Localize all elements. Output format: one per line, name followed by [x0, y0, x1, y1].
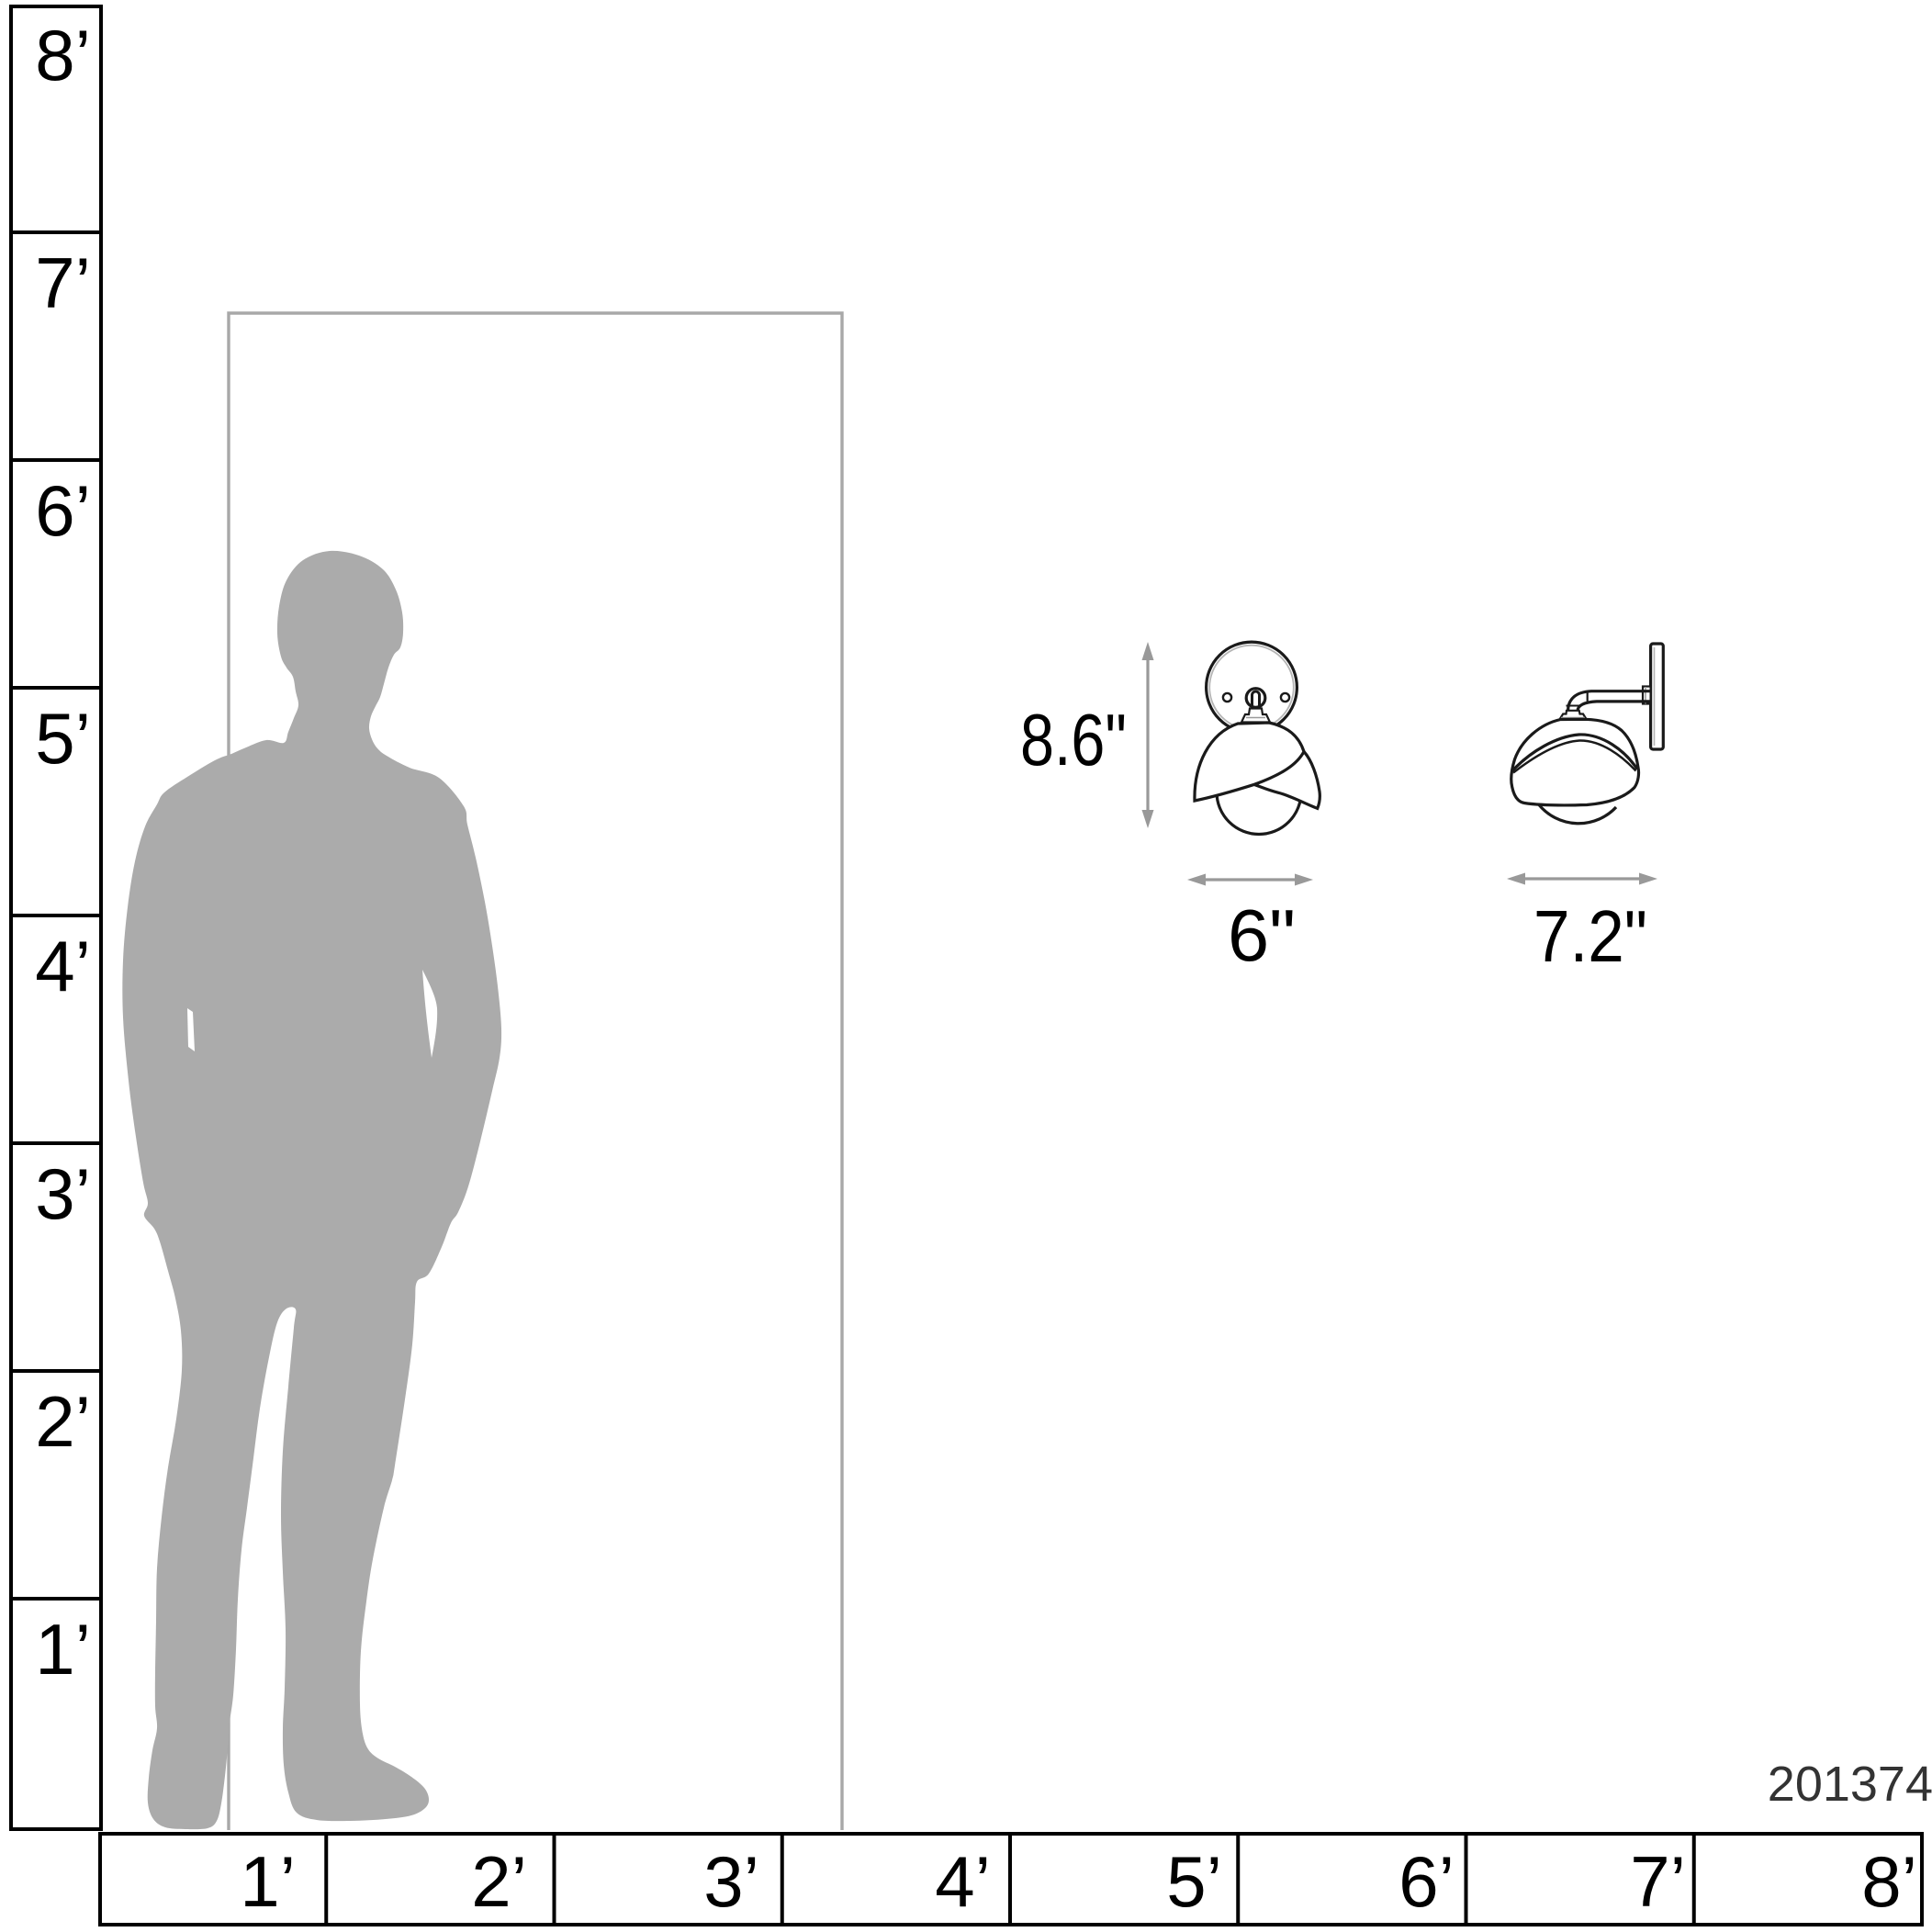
svg-text:2’: 2’: [35, 1381, 91, 1462]
svg-text:5’: 5’: [35, 698, 91, 779]
svg-text:4’: 4’: [35, 926, 91, 1006]
svg-text:3’: 3’: [35, 1153, 91, 1234]
svg-text:6’: 6’: [1398, 1841, 1455, 1922]
svg-text:7.2": 7.2": [1533, 895, 1647, 977]
svg-text:7’: 7’: [1630, 1841, 1686, 1922]
svg-text:1’: 1’: [240, 1841, 296, 1922]
svg-text:201374: 201374: [1768, 1757, 1932, 1812]
svg-text:2’: 2’: [471, 1841, 527, 1922]
svg-text:5’: 5’: [1166, 1841, 1222, 1922]
svg-text:6": 6": [1228, 894, 1296, 976]
svg-text:4’: 4’: [935, 1841, 991, 1922]
svg-text:6’: 6’: [35, 470, 91, 551]
svg-text:8’: 8’: [1861, 1841, 1917, 1922]
svg-text:7’: 7’: [35, 242, 91, 323]
svg-text:8.6": 8.6": [1020, 699, 1127, 781]
svg-text:1’: 1’: [35, 1609, 91, 1690]
svg-text:3’: 3’: [703, 1841, 759, 1922]
svg-text:8’: 8’: [35, 15, 91, 95]
